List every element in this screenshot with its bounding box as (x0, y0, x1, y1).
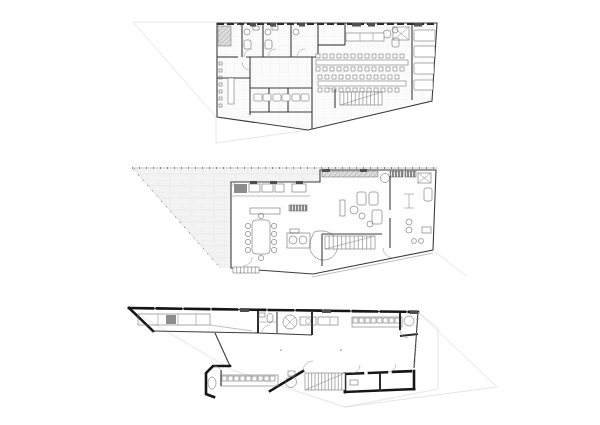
floor-plans-canvas (0, 0, 600, 425)
lower-floor-plan (129, 308, 497, 407)
floor-plan-sheet (0, 0, 600, 425)
upper-floor-plan (133, 22, 437, 143)
middle-floor-plan (132, 168, 466, 277)
